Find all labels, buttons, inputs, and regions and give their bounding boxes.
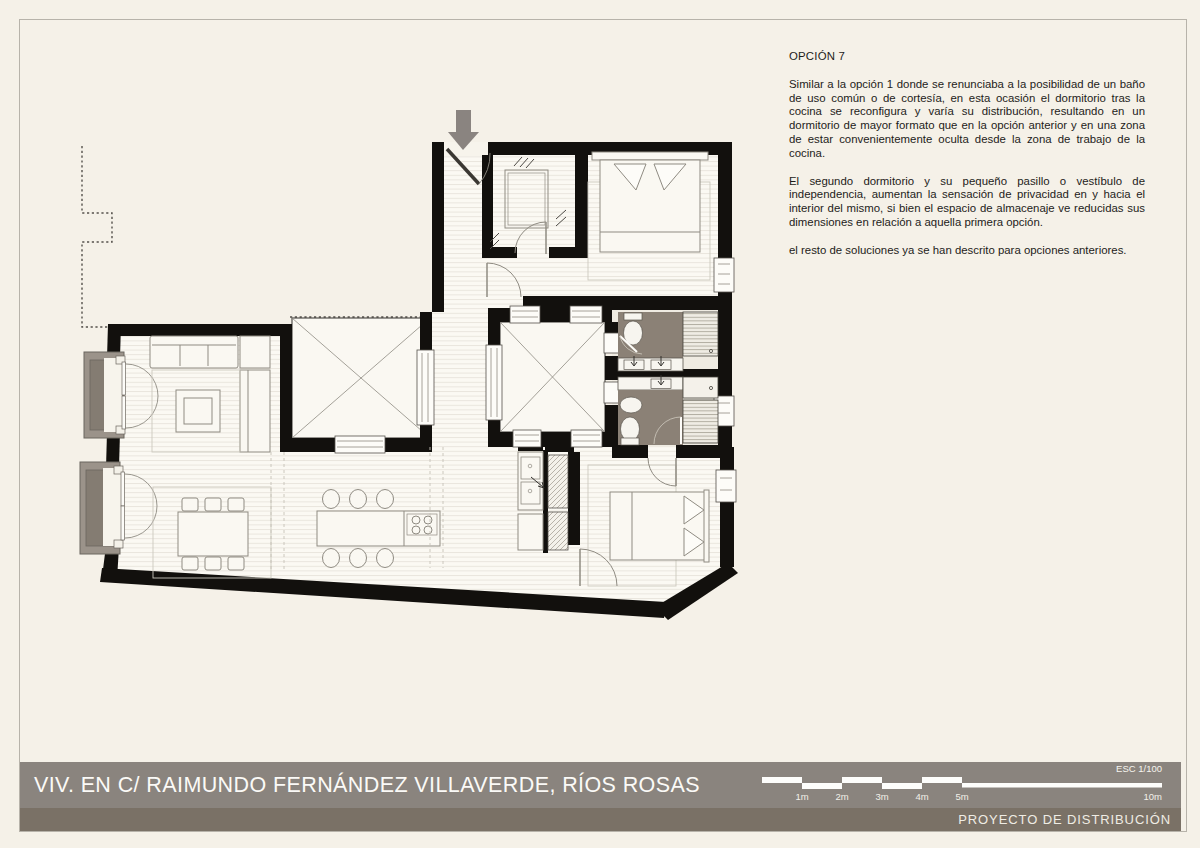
lightwell-middle (500, 322, 605, 432)
lightwell-left (292, 318, 430, 438)
scale-mark-3m: 3m (875, 791, 888, 802)
scale-mark-1m: 1m (795, 791, 808, 802)
scale-label-esc: ESC 1/100 (1116, 763, 1162, 774)
scale-mark-10m: 10m (1144, 791, 1163, 802)
shower-and-shafts (683, 312, 718, 443)
notes-paragraph-1: Similar a la opción 1 donde se renunciab… (789, 78, 1145, 161)
scale-mark-2m: 2m (835, 791, 848, 802)
property-boundary-dashed (82, 146, 428, 327)
title-bar: VIV. EN C/ RAIMUNDO FERNÁNDEZ VILLAVERDE… (20, 762, 1181, 808)
project-title: VIV. EN C/ RAIMUNDO FERNÁNDEZ VILLAVERDE… (34, 773, 700, 798)
notes-column: OPCIÓN 7 Similar a la opción 1 donde se … (789, 50, 1145, 272)
scale-bar-segments (762, 777, 1162, 789)
notes-paragraph-2: El segundo dormitorio y su pequeño pasil… (789, 175, 1145, 230)
kitchen-counter (518, 452, 568, 550)
scale-bar: ESC 1/100 1m 2m 3m 4m 5m 10m (758, 762, 1168, 808)
notes-paragraph-3: el resto de soluciones ya se han descrit… (789, 244, 1145, 258)
scale-mark-5m: 5m (955, 791, 968, 802)
footer-project-label: PROYECTO DE DISTRIBUCIÓN (958, 808, 1171, 831)
option-label: OPCIÓN 7 (789, 50, 1145, 64)
bathroom-top (618, 312, 683, 371)
scale-mark-4m: 4m (915, 791, 928, 802)
scale-bar-labels: 1m 2m 3m 4m 5m 10m (795, 791, 1162, 802)
footer-bar: PROYECTO DE DISTRIBUCIÓN (20, 808, 1181, 831)
bathroom-bottom (618, 375, 683, 445)
